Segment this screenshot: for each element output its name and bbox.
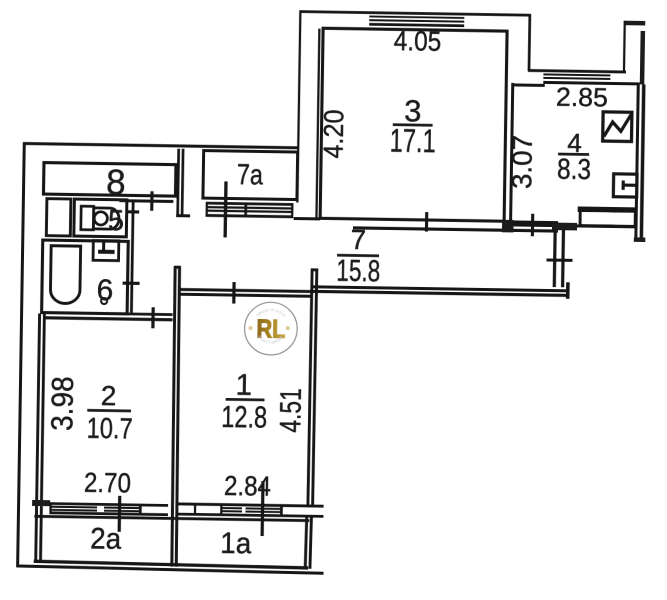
svg-text:3.07: 3.07 [506,135,538,189]
svg-text:7: 7 [350,224,366,255]
svg-text:15.8: 15.8 [336,252,381,288]
svg-text:2.70: 2.70 [84,467,131,499]
svg-text:1: 1 [235,369,252,402]
svg-text:6: 6 [96,274,113,307]
svg-text:2.85: 2.85 [556,82,608,113]
svg-text:2.84: 2.84 [224,470,271,502]
svg-text:12.8: 12.8 [221,399,268,435]
svg-text:4.20: 4.20 [318,109,350,158]
svg-text:7a: 7a [237,159,264,191]
svg-text:2a: 2a [90,522,122,555]
svg-text:4.51: 4.51 [274,388,308,433]
svg-text:8.3: 8.3 [557,154,591,187]
svg-text:17.1: 17.1 [389,123,436,160]
svg-text:8: 8 [106,163,126,202]
svg-text:5: 5 [108,205,125,237]
svg-text:4.05: 4.05 [394,25,442,57]
svg-text:2: 2 [101,380,117,411]
svg-text:10.7: 10.7 [86,413,132,446]
svg-text:1a: 1a [220,527,252,560]
svg-text:3.98: 3.98 [44,376,80,431]
